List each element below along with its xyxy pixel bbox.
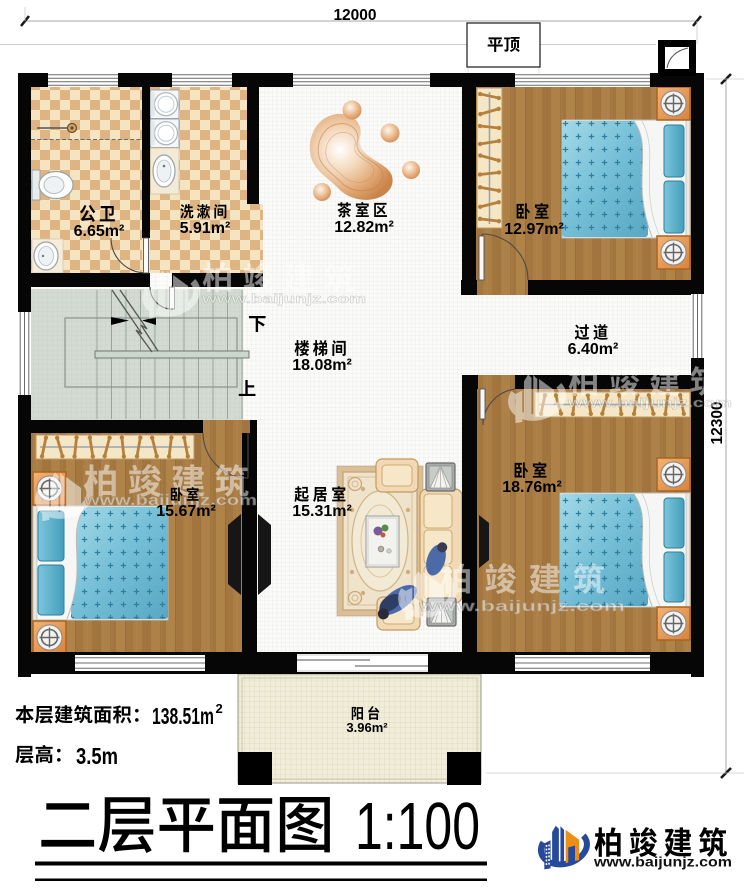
svg-text:www.baijunjz.com: www.baijunjz.com: [417, 598, 625, 615]
svg-text:www.baijunjz.com: www.baijunjz.com: [593, 855, 732, 870]
svg-text:www.baijunjz.com: www.baijunjz.com: [567, 395, 732, 410]
svg-text:15.31m²: 15.31m²: [292, 503, 352, 520]
svg-text:2: 2: [216, 701, 223, 716]
svg-text:5.91m²: 5.91m²: [180, 220, 231, 237]
svg-text:3.96m²: 3.96m²: [346, 720, 388, 735]
svg-text:6.65m²: 6.65m²: [74, 223, 125, 240]
svg-text:18.08m²: 18.08m²: [292, 357, 352, 374]
svg-text:18.76m²: 18.76m²: [502, 479, 562, 496]
svg-text:www.baijunjz.com: www.baijunjz.com: [201, 291, 366, 306]
svg-text:1:100: 1:100: [355, 789, 480, 864]
svg-text:6.40m²: 6.40m²: [568, 341, 619, 358]
svg-text:12000: 12000: [333, 7, 376, 24]
svg-text:12.82m²: 12.82m²: [334, 219, 394, 236]
svg-text:138.51m: 138.51m: [152, 703, 214, 729]
svg-text:3.5m: 3.5m: [76, 743, 118, 769]
svg-text:15.67m²: 15.67m²: [156, 503, 216, 520]
svg-text:12.97m²: 12.97m²: [504, 221, 564, 238]
